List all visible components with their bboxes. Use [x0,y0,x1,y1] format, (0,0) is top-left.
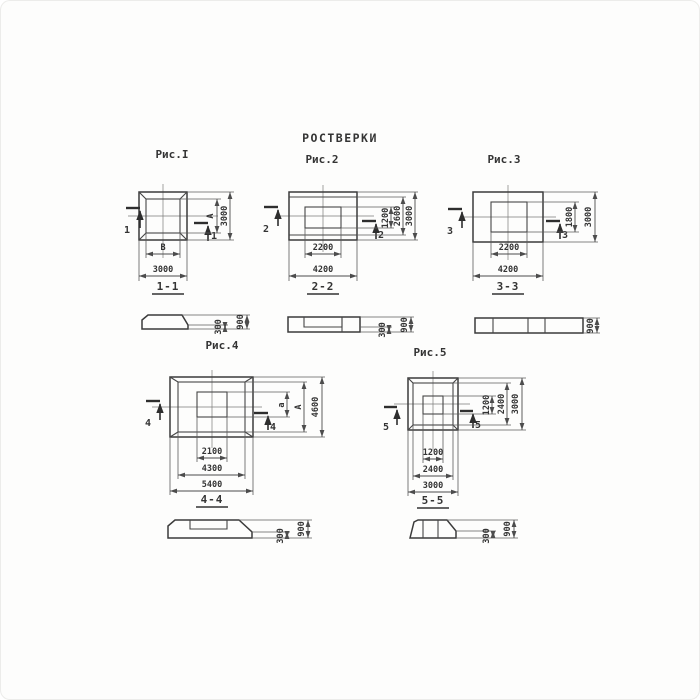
cut-number: 3 [447,226,453,237]
bevel-line [139,192,146,199]
figure-2: Рис.2 2 2 2200 4200 1200 2600 [263,153,418,338]
bevel-line [180,233,187,240]
section-recess-line [304,317,342,327]
dim-inner-width-label: 2200 [499,243,519,253]
dim-mid-height-label: 2400 [497,394,507,414]
cut-number: 5 [383,422,389,433]
dim-outer-height-label: 3000 [584,207,594,227]
figure-5-caption: Рис.5 [413,346,446,359]
dim-outer-width-label: 4200 [313,265,333,275]
scanned-drawing-page: РОСТВЕРКИ Рис.I 1 1 В 3000 А [0,0,700,700]
section-profile [410,520,456,538]
cut-number: 4 [270,422,276,433]
dim-outer-height-label: 3000 [405,206,415,226]
dim-section-total-label: 900 [400,317,410,332]
dim-mid-width-label: 4300 [202,464,222,474]
cut-number: 2 [378,230,384,241]
bevel-line [180,192,187,199]
dim-inner-width-label: 2200 [313,243,333,253]
dim-mid-height-label: А [294,404,304,409]
figure-3-caption: Рис.3 [487,153,520,166]
figure-4-caption: Рис.4 [205,339,238,352]
dim-section-total-label: 900 [586,318,596,333]
dim-section-bottom-label: 300 [214,319,224,334]
figure-1: Рис.I 1 1 В 3000 А 3000 [124,148,250,335]
dim-outer-width-label: 3000 [423,481,443,491]
dim-inner-width-label: В [160,243,165,253]
figure-3: Рис.3 3 3 2200 4200 1800 3000 3-3 [447,153,600,334]
dim-inner-height-label: 1200 [482,395,492,415]
section-title: 5-5 [422,494,445,507]
dim-section-total-label: 900 [297,521,307,536]
figure-2-caption: Рис.2 [305,153,338,166]
dim-outer-height-label: 3000 [511,394,521,414]
dim-outer-width-label: 4200 [498,265,518,275]
dim-inner-width-label: 1200 [423,448,443,458]
cut-number: 5 [475,420,481,431]
dim-section-total-label: 900 [503,521,513,536]
section-profile [288,317,360,332]
dim-inner-height-label: 1800 [565,207,575,227]
section-profile [142,315,188,329]
bevel-line [139,233,146,240]
dim-outer-width-label: 5400 [202,480,222,490]
dim-inner-height-label: А [206,213,216,218]
dim-outer-height-label: 3000 [220,206,230,226]
section-title: 3-3 [497,280,520,293]
dim-mid-height-label: 2600 [393,206,403,226]
figure-1-caption: Рис.I [155,148,188,161]
drawing-title: РОСТВЕРКИ [302,131,378,145]
dim-section-bottom-label: 300 [378,322,388,337]
dim-mid-width-label: 2400 [423,465,443,475]
cut-number: 4 [145,418,151,429]
section-profile [475,318,583,333]
cut-number: 1 [124,225,130,236]
cut-number: 2 [263,224,269,235]
section-title: 2-2 [312,280,335,293]
dim-section-bottom-label: 300 [276,528,286,543]
dim-outer-height-label: 4600 [311,397,321,417]
dim-section-total-label: 900 [236,314,246,329]
dim-inner-height-label: а [277,402,287,407]
dim-section-bottom-label: 300 [482,528,492,543]
dim-inner-width-label: 2100 [202,447,222,457]
figure-5: Рис.5 5 5 1200 2400 3000 [383,346,526,544]
section-title: 1-1 [157,280,180,293]
section-recess-line [190,520,227,529]
dim-outer-width-label: 3000 [153,265,173,275]
drawing-canvas: РОСТВЕРКИ Рис.I 1 1 В 3000 А [0,0,700,700]
section-title: 4-4 [201,493,224,506]
dim-inner-height-label: 1200 [381,208,391,228]
figure-4: Рис.4 4 4 2100 4300 5400 [145,339,325,544]
